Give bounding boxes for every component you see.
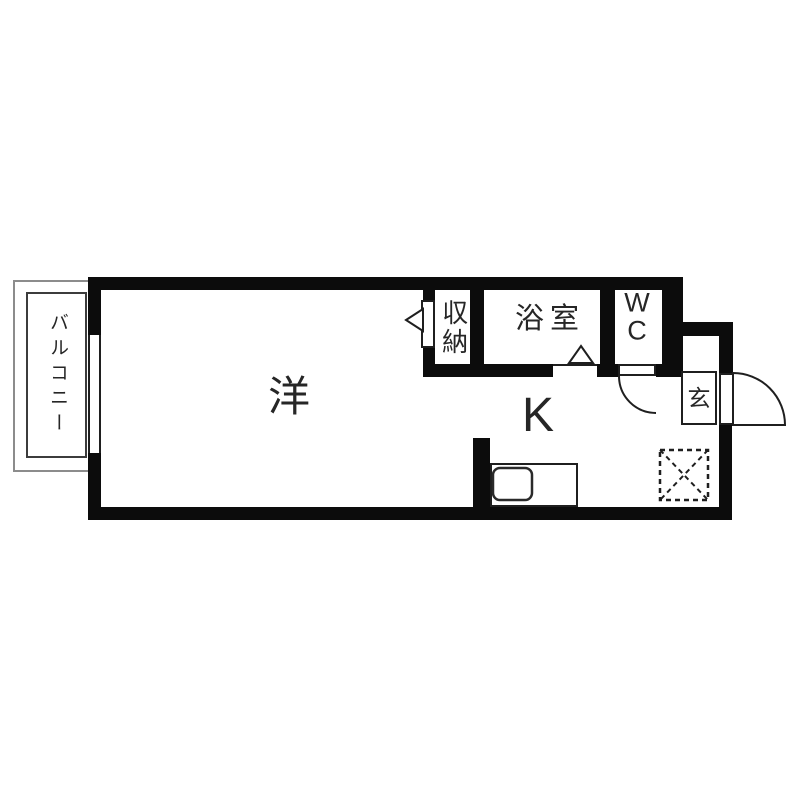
wc-label: W C bbox=[624, 289, 649, 346]
fixture-overlay bbox=[0, 0, 800, 800]
bathroom-door-marker-icon bbox=[569, 346, 593, 363]
closet-door-direction-icon bbox=[406, 309, 423, 331]
floor-plan: バルコニー 洋 K 収納 浴室 W C 玄 bbox=[0, 0, 800, 800]
bathroom-label: 浴室 bbox=[509, 304, 585, 334]
kitchen-label: K bbox=[522, 391, 554, 441]
wc-door-swing-arc bbox=[619, 376, 656, 413]
wc-label-line1: W bbox=[624, 289, 649, 317]
entrance-label: 玄 bbox=[688, 386, 711, 410]
living-room-label: 洋 bbox=[268, 375, 310, 419]
closet-label: 収納 bbox=[439, 299, 466, 357]
entrance-door-swing-arc bbox=[733, 373, 785, 425]
sink-icon bbox=[493, 468, 532, 500]
balcony-label: バルコニー bbox=[47, 313, 67, 438]
wc-label-line2: C bbox=[624, 317, 649, 345]
